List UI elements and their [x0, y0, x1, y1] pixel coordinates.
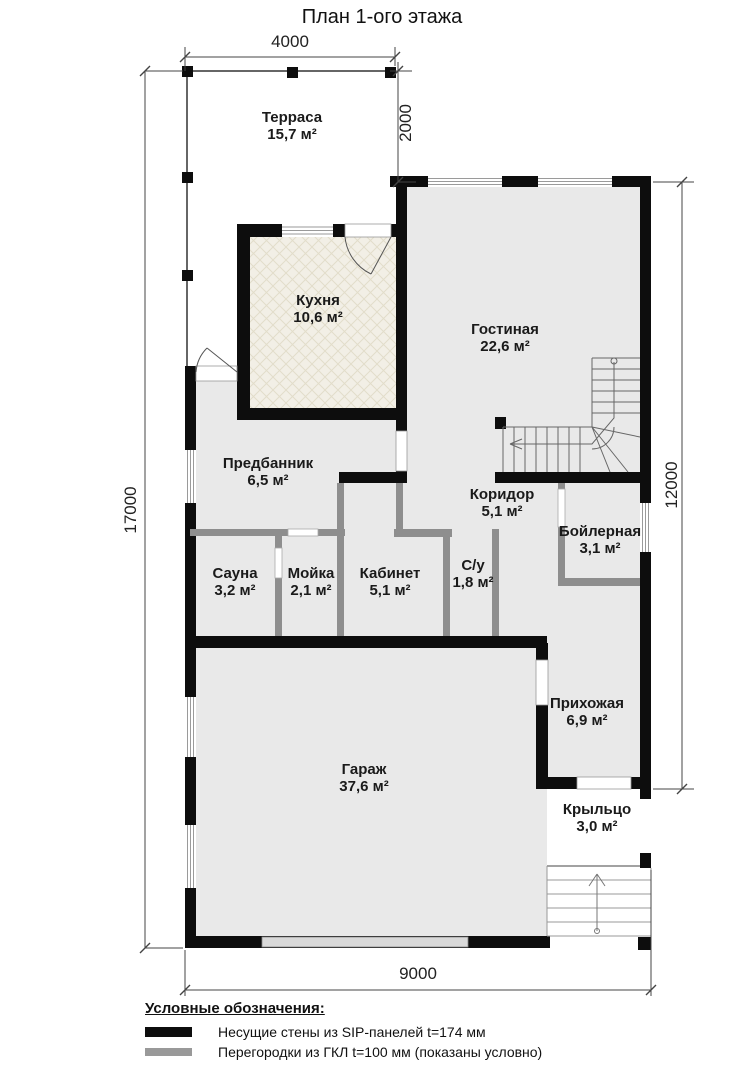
room-label-porch: Крыльцо 3,0 м²	[563, 801, 631, 835]
room-name: Кабинет	[360, 565, 421, 582]
room-label-hallway: Прихожая 6,9 м²	[550, 695, 624, 729]
legend-item-label: Несущие стены из SIP-панелей t=174 мм	[218, 1024, 486, 1040]
room-name: Сауна	[212, 565, 257, 582]
room-label-bathroom: С/у 1,8 м²	[452, 557, 493, 591]
room-label-boiler-room: Бойлерная 3,1 м²	[559, 523, 641, 557]
dimension-label-terrace-depth: 2000	[396, 104, 416, 142]
room-area: 6,9 м²	[550, 712, 624, 729]
legend-heading: Условные обозначения:	[145, 1000, 705, 1017]
room-area: 3,2 м²	[212, 582, 257, 599]
room-name: Предбанник	[223, 455, 313, 472]
room-name: Прихожая	[550, 695, 624, 712]
room-name: Кухня	[293, 292, 342, 309]
room-area: 6,5 м²	[223, 472, 313, 489]
dimension-label-bottom: 9000	[399, 964, 437, 984]
room-label-vestibule: Предбанник 6,5 м²	[223, 455, 313, 489]
room-name: Гостиная	[471, 321, 539, 338]
room-label-kitchen: Кухня 10,6 м²	[293, 292, 342, 326]
room-label-corridor: Коридор 5,1 м²	[470, 486, 535, 520]
room-area: 3,0 м²	[563, 818, 631, 835]
room-name: С/у	[452, 557, 493, 574]
page-title: План 1-ого этажа	[302, 6, 463, 29]
room-label-garage: Гараж 37,6 м²	[339, 761, 388, 795]
room-label-office: Кабинет 5,1 м²	[360, 565, 421, 599]
room-label-living-room: Гостиная 22,6 м²	[471, 321, 539, 355]
room-area: 37,6 м²	[339, 778, 388, 795]
dimension-label-top: 4000	[271, 32, 309, 52]
legend-item-bearing-wall: Несущие стены из SIP-панелей t=174 мм	[145, 1024, 705, 1040]
room-name: Терраса	[262, 109, 322, 126]
bearing-wall-swatch	[145, 1027, 192, 1037]
room-name: Крыльцо	[563, 801, 631, 818]
partition-swatch	[145, 1048, 192, 1056]
floor-plan-page: План 1-ого этажа 4000 2000 17000 12000 9…	[0, 0, 753, 1080]
room-area: 10,6 м²	[293, 309, 342, 326]
room-area: 3,1 м²	[559, 540, 641, 557]
room-name: Гараж	[339, 761, 388, 778]
room-name: Бойлерная	[559, 523, 641, 540]
legend-item-partition: Перегородки из ГКЛ t=100 мм (показаны ус…	[145, 1044, 705, 1060]
room-area: 2,1 м²	[288, 582, 335, 599]
room-area: 5,1 м²	[360, 582, 421, 599]
garage-door	[262, 937, 468, 947]
dimension-label-left: 17000	[121, 486, 141, 533]
room-name: Коридор	[470, 486, 535, 503]
room-label-terrace: Терраса 15,7 м²	[262, 109, 322, 143]
room-label-washroom: Мойка 2,1 м²	[288, 565, 335, 599]
room-area: 15,7 м²	[262, 126, 322, 143]
room-area: 5,1 м²	[470, 503, 535, 520]
dimension-label-right: 12000	[662, 461, 682, 508]
room-area: 1,8 м²	[452, 574, 493, 591]
porch-steps	[547, 866, 651, 936]
legend: Условные обозначения: Несущие стены из S…	[145, 1000, 705, 1060]
room-area: 22,6 м²	[471, 338, 539, 355]
room-name: Мойка	[288, 565, 335, 582]
room-label-sauna: Сауна 3,2 м²	[212, 565, 257, 599]
legend-item-label: Перегородки из ГКЛ t=100 мм (показаны ус…	[218, 1044, 542, 1060]
